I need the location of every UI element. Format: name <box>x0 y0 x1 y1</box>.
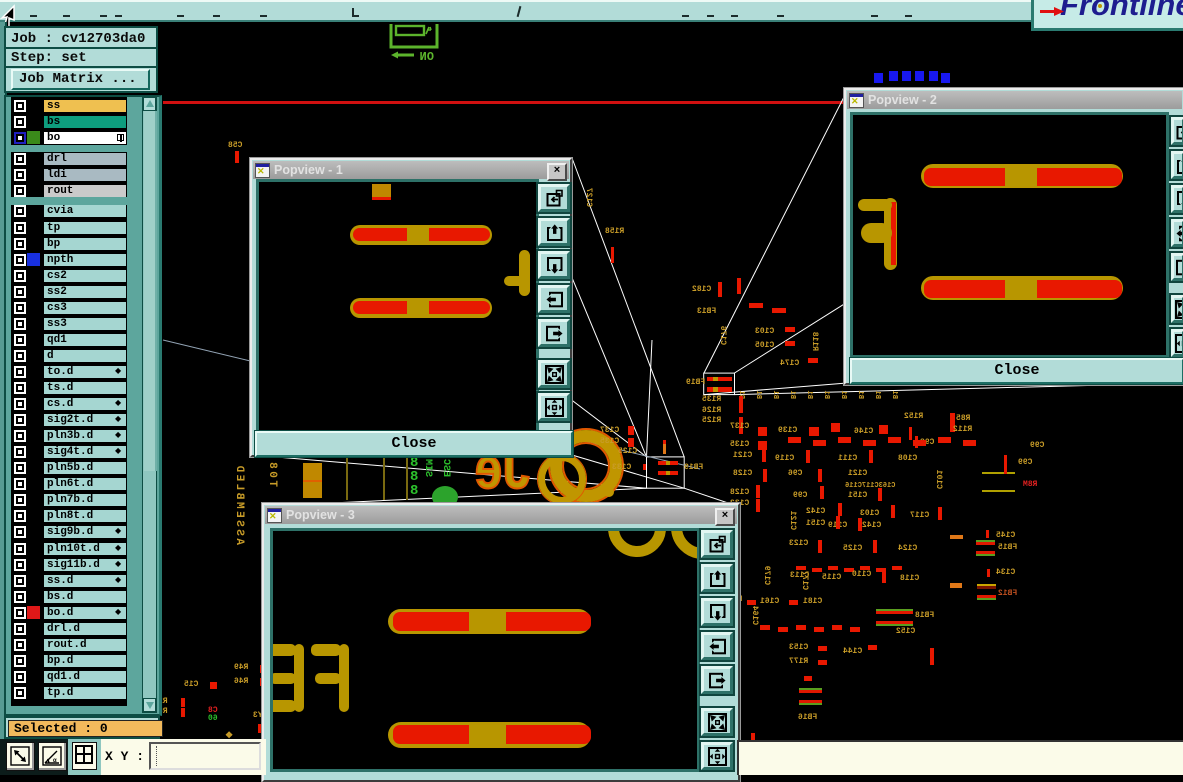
svg-text:α: α <box>53 757 57 764</box>
